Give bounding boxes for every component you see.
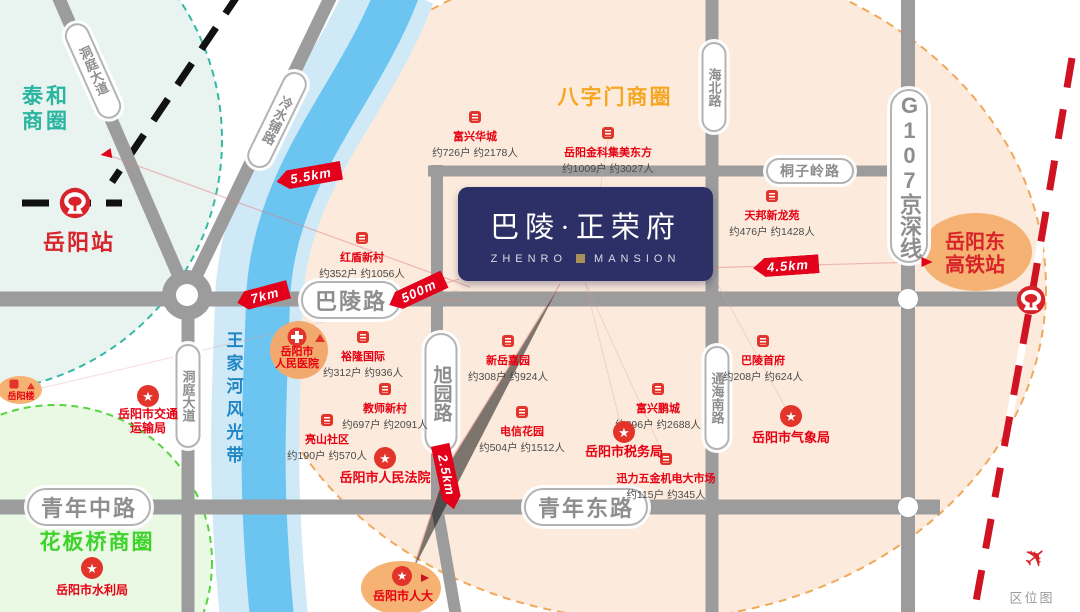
arrowhead-icon bbox=[100, 148, 113, 160]
east-station-line2: 高铁站 bbox=[945, 249, 1005, 278]
project-card: 巴陵·正荣府 ZHENRO MANSION bbox=[458, 187, 713, 281]
poi-jinke: 岳阳金科集美东方约1009户 约3027人 bbox=[518, 126, 698, 176]
road-haibei: 海北路 bbox=[702, 42, 727, 132]
road-qingnian-zhong: 青年中路 bbox=[27, 488, 151, 526]
court-label: 岳阳市人民法院 bbox=[339, 471, 430, 485]
railway-logo-icon-east bbox=[1017, 286, 1046, 315]
star-icon-tax: ★ bbox=[613, 421, 635, 443]
road-dongting-dadao: 洞庭大道 bbox=[176, 344, 201, 448]
road-tongziling: 桐子岭路 bbox=[766, 158, 854, 184]
junction-dot-2 bbox=[898, 497, 918, 517]
bazimen-zone-label: 八字门商圈 bbox=[558, 81, 673, 111]
poi-xunli-market: 迅力五金机电大市场约115户 约345人 bbox=[576, 452, 756, 502]
star-icon: ★ bbox=[137, 385, 159, 407]
yueyang-station-label: 岳阳站 bbox=[43, 225, 115, 257]
poi-balingshoufu: 巴陵首府约208户 约624人 bbox=[673, 334, 853, 384]
renda-label: 岳阳市人大 bbox=[373, 589, 433, 603]
building-icon bbox=[502, 335, 514, 347]
building-icon bbox=[321, 414, 333, 426]
project-en-left: ZHENRO bbox=[491, 253, 567, 265]
poi-tianbang: 天邦新龙苑约476户 约1428人 bbox=[682, 189, 862, 239]
building-icon bbox=[652, 383, 664, 395]
jiaotong-label: 岳阳市交通运输局 bbox=[118, 407, 178, 435]
project-en-right: MANSION bbox=[594, 253, 680, 265]
poi-fuxingpengcheng: 富兴鹏城约896户 约2688人 bbox=[568, 382, 748, 432]
road-baling: 巴陵路 bbox=[301, 281, 401, 319]
yueyanglou-label: 岳阳楼 bbox=[7, 389, 34, 403]
hospital-cross-icon bbox=[288, 328, 307, 347]
road-g107: G107京深线 bbox=[890, 89, 928, 263]
marker-triangle-icon bbox=[315, 334, 325, 342]
hospital-label: 岳阳市人民医院 bbox=[275, 346, 319, 370]
star-icon-water: ★ bbox=[81, 557, 103, 579]
location-map: 泰和 商圈 八字门商圈 花板桥商圈 王家河风光带 区位图 ✈ 岳阳站 岳阳东 高… bbox=[0, 0, 1080, 612]
taihe-zone-label: 泰和 商圈 bbox=[22, 84, 70, 134]
project-name-cn: 巴陵·正荣府 bbox=[490, 204, 681, 246]
star-icon-renda: ★ bbox=[392, 566, 412, 586]
building-icon bbox=[469, 111, 481, 123]
building-icon bbox=[379, 383, 391, 395]
building-icon bbox=[602, 127, 614, 139]
poi-xinyue: 新岳嘉园约308户 约924人 bbox=[418, 334, 598, 384]
star-icon-court: ★ bbox=[374, 447, 396, 469]
project-name-en: ZHENRO MANSION bbox=[491, 253, 681, 265]
tower-icon bbox=[10, 380, 19, 389]
gold-square-icon bbox=[576, 254, 585, 263]
building-icon bbox=[356, 232, 368, 244]
junction-dot bbox=[898, 289, 918, 309]
poi-hongdun: 红盾新村约352户 约1056人 bbox=[272, 231, 452, 281]
corner-label: 区位图 bbox=[1009, 588, 1054, 607]
building-icon bbox=[757, 335, 769, 347]
flag-icon bbox=[421, 574, 429, 582]
building-icon bbox=[766, 190, 778, 202]
huabanqiao-zone-label: 花板桥商圈 bbox=[40, 526, 155, 556]
building-icon bbox=[357, 331, 369, 343]
tax-label: 岳阳市税务局 bbox=[585, 445, 663, 459]
water-label: 岳阳市水利局 bbox=[56, 583, 128, 597]
star-icon-weather: ★ bbox=[780, 405, 802, 427]
building-icon bbox=[516, 406, 528, 418]
weather-label: 岳阳市气象局 bbox=[752, 431, 830, 445]
railway-logo-icon bbox=[60, 188, 90, 218]
arrowhead-icon-east bbox=[922, 257, 933, 267]
